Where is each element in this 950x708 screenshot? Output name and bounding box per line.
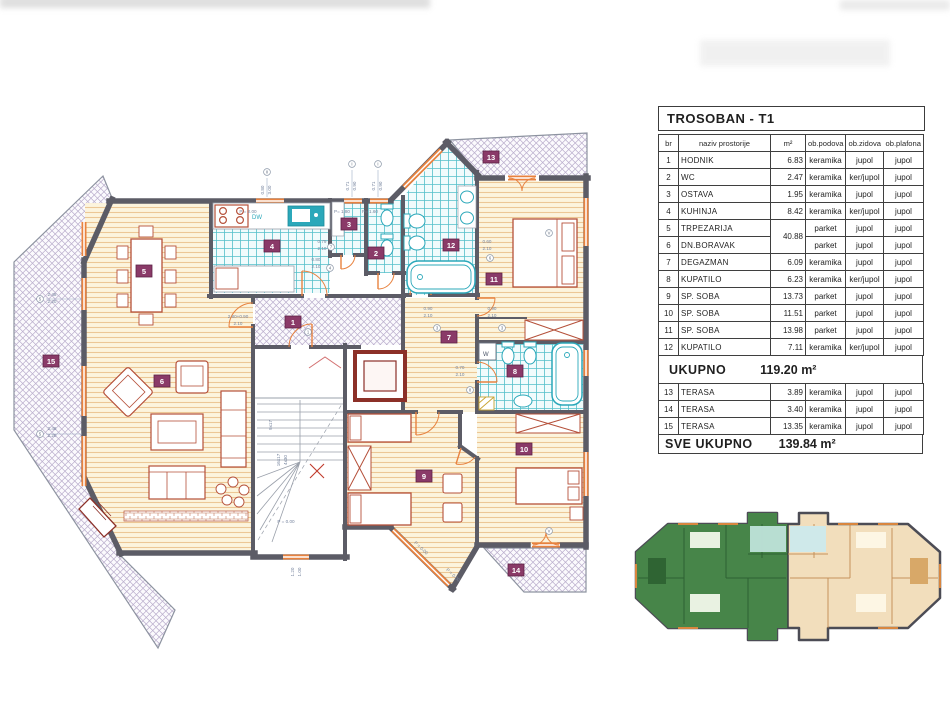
svg-text:13: 13 — [487, 153, 495, 162]
room-badge: 4 — [264, 240, 280, 252]
table-row: 1HODNIK6.83keramikajupoljupol — [659, 152, 924, 169]
dimension-text: 16x17 — [276, 453, 281, 466]
dimension-text: P= 1.60 — [362, 209, 378, 214]
room-badge: 9 — [416, 470, 432, 482]
opening-tag: II — [264, 169, 271, 176]
opening-tag: 5 — [37, 431, 44, 438]
svg-text:11: 11 — [490, 275, 498, 284]
dimension-text: 9x17 — [268, 420, 273, 430]
col-br: br — [659, 135, 679, 152]
svg-text:10: 10 — [520, 445, 528, 454]
svg-text:9: 9 — [422, 472, 426, 481]
dimension-text: 1.00 — [297, 567, 302, 576]
col-floor: ob.podova — [806, 135, 846, 152]
table-row: 12KUPATILO7.11keramikaker/jupoljupol — [659, 339, 924, 356]
dimension-text: 2.10 — [488, 313, 497, 318]
bathtub-icon — [407, 261, 475, 293]
dimension-text: 0.71 — [371, 181, 376, 190]
table-row: 7DEGAZMAN6.09keramikajupoljupol — [659, 254, 924, 271]
subtotal-band: UKUPNO 119.20 m² — [658, 355, 923, 384]
total-label: SVE UKUPNO — [665, 437, 753, 451]
svg-text:V: V — [548, 231, 551, 236]
dimension-text: 1.20 — [290, 567, 295, 576]
svg-text:W: W — [483, 352, 489, 358]
col-walls: ob.zidova — [846, 135, 884, 152]
dimension-text: 2.10 — [424, 313, 433, 318]
svg-text:II: II — [266, 170, 268, 175]
room-badge: 7 — [441, 331, 457, 343]
dimension-text: P = 2.00 — [239, 209, 257, 214]
svg-text:I: I — [377, 162, 378, 167]
bidet-icon — [404, 236, 425, 250]
opening-tag: 6 — [487, 255, 494, 262]
room-badge: 15 — [43, 355, 59, 367]
table-row: 15TERASA13.35keramikajupoljupol — [659, 418, 924, 435]
dimension-text: 0.71 — [345, 181, 350, 190]
table-row: 11SP. SOBA13.98parketjupoljupol — [659, 322, 924, 339]
dimension-text: 4x30 — [283, 455, 288, 465]
dimension-text: 0.90 — [352, 181, 357, 190]
opening-tag: 1 — [305, 329, 312, 336]
sofa — [149, 466, 205, 499]
subtotal-value: 119.20 m² — [760, 363, 816, 377]
room-badge: 13 — [483, 151, 499, 163]
dishwasher-label: DW — [252, 215, 262, 221]
scan-smudge — [840, 0, 950, 10]
room-badge: 8 — [507, 365, 523, 377]
room-badge: 6 — [154, 375, 170, 387]
room-badge: 5 — [136, 265, 152, 277]
room-badge: 14 — [508, 564, 524, 576]
svg-text:12: 12 — [447, 241, 455, 250]
table-row: 3OSTAVA1.95keramikajupoljupol — [659, 186, 924, 203]
bathtub-icon — [552, 343, 582, 405]
apartment-title: TROSOBAN - T1 — [658, 106, 925, 131]
bed-room11 — [513, 219, 577, 287]
hearth-bricks — [124, 511, 248, 521]
dimension-text: 0.70 — [456, 365, 465, 370]
elevator-shaft — [355, 352, 405, 400]
dimension-text: P= 1.80 — [334, 209, 350, 214]
svg-text:2: 2 — [374, 249, 378, 258]
table-row: 8KUPATILO6.23keramikaker/jupoljupol — [659, 271, 924, 288]
washing-machine-icon: W — [479, 343, 496, 360]
col-area: m² — [771, 135, 806, 152]
dimension-text: 2.48 — [48, 292, 57, 297]
svg-text:I: I — [351, 162, 352, 167]
dimension-text: 0.80 — [312, 257, 321, 262]
corridor-7-floor — [403, 298, 477, 412]
dimension-text: 2.80+0.90 — [228, 314, 249, 319]
dimension-text: 2.10 — [234, 321, 243, 326]
dimension-text: 0.60 — [483, 239, 492, 244]
dimension-text: 2.10 — [312, 264, 321, 269]
room-badge: 1 — [285, 316, 301, 328]
shaft-hatch — [479, 397, 494, 410]
svg-text:1: 1 — [291, 318, 295, 327]
dimension-text: 0.90 — [488, 306, 497, 311]
col-ceiling: ob.plafona — [884, 135, 924, 152]
table-row: 14TERASA3.40keramikajupoljupol — [659, 401, 924, 418]
dimension-text: 0.79 — [318, 239, 327, 244]
sink-icon — [458, 186, 476, 228]
col-name: naziv prostorije — [679, 135, 771, 152]
svg-text:7: 7 — [447, 333, 451, 342]
dimension-text: 2.10 — [483, 246, 492, 251]
dimension-text: 3.00 — [267, 185, 272, 194]
scan-smudge — [700, 40, 890, 66]
room-schedule: TROSOBAN - T1 br naziv prostorije m² ob.… — [658, 106, 925, 454]
subtotal-label: UKUPNO — [669, 363, 726, 377]
room-badge: 11 — [486, 273, 502, 285]
svg-text:14: 14 — [512, 566, 521, 575]
table-row: 13TERASA3.89keramikajupoljupol — [659, 384, 924, 401]
dimension-text: 2.48 — [48, 426, 57, 431]
room-badge: 10 — [516, 443, 532, 455]
terrace-table: 13TERASA3.89keramikajupoljupol14TERASA3.… — [658, 383, 924, 435]
floorplan-drawing: DW — [0, 0, 660, 708]
coffee-table — [151, 414, 203, 450]
room-badge: 3 — [341, 218, 357, 230]
table-row: 4KUHINJA8.42keramikaker/jupoljupol — [659, 203, 924, 220]
svg-text:15: 15 — [47, 357, 55, 366]
table-row: 9SP. SOBA13.73parketjupoljupol — [659, 288, 924, 305]
key-plan — [628, 498, 948, 658]
opening-tag: 3 — [434, 325, 441, 332]
svg-text:6: 6 — [160, 377, 164, 386]
svg-text:5: 5 — [142, 267, 146, 276]
toilet-icon — [404, 214, 425, 228]
opening-tag: V — [546, 230, 553, 237]
dimension-text: 2.10 — [456, 372, 465, 377]
tv-cabinet — [221, 391, 246, 467]
opening-tag: I — [375, 161, 382, 168]
total-band: SVE UKUPNO 139.84 m² — [658, 434, 923, 454]
armchair — [176, 361, 208, 393]
opening-tag: 3 — [499, 325, 506, 332]
dimension-text: P = 0.00 — [277, 519, 295, 524]
opening-tag: 5 — [37, 296, 44, 303]
kitchen-sink-icon — [288, 206, 324, 226]
opening-tag: 7 — [328, 244, 335, 251]
svg-text:V: V — [548, 529, 551, 534]
dimension-text: 2.10 — [318, 246, 327, 251]
dimension-text: 0.80 — [260, 185, 265, 194]
table-header-row: br naziv prostorije m² ob.podova ob.zido… — [659, 135, 924, 152]
opening-tag: I — [349, 161, 356, 168]
svg-text:3: 3 — [347, 220, 351, 229]
svg-text:8: 8 — [513, 367, 517, 376]
room-badge: 12 — [443, 239, 459, 251]
room-table: br naziv prostorije m² ob.podova ob.zido… — [658, 134, 924, 356]
total-value: 139.84 m² — [779, 437, 836, 451]
dimension-text: 2.20 — [48, 299, 57, 304]
dimension-text: 0.90 — [378, 181, 383, 190]
dimension-text: 2.20 — [48, 433, 57, 438]
terrace-14-floor — [484, 548, 586, 592]
hallway-1-floor — [255, 298, 403, 345]
room-badge: 2 — [368, 247, 384, 259]
dimension-text: 0.90 — [424, 306, 433, 311]
table-row: 5TRPEZARIJA40.88parketjupoljupol — [659, 220, 924, 237]
table-row: 2WC2.47keramikaker/jupoljupol — [659, 169, 924, 186]
table-row: 10SP. SOBA11.51parketjupoljupol — [659, 305, 924, 322]
opening-tag: 8 — [467, 387, 474, 394]
scanned-floorplan-page: DW — [0, 0, 950, 708]
opening-tag: V — [546, 528, 553, 535]
key-plan-building — [636, 513, 940, 640]
opening-tag: 4 — [327, 265, 334, 272]
